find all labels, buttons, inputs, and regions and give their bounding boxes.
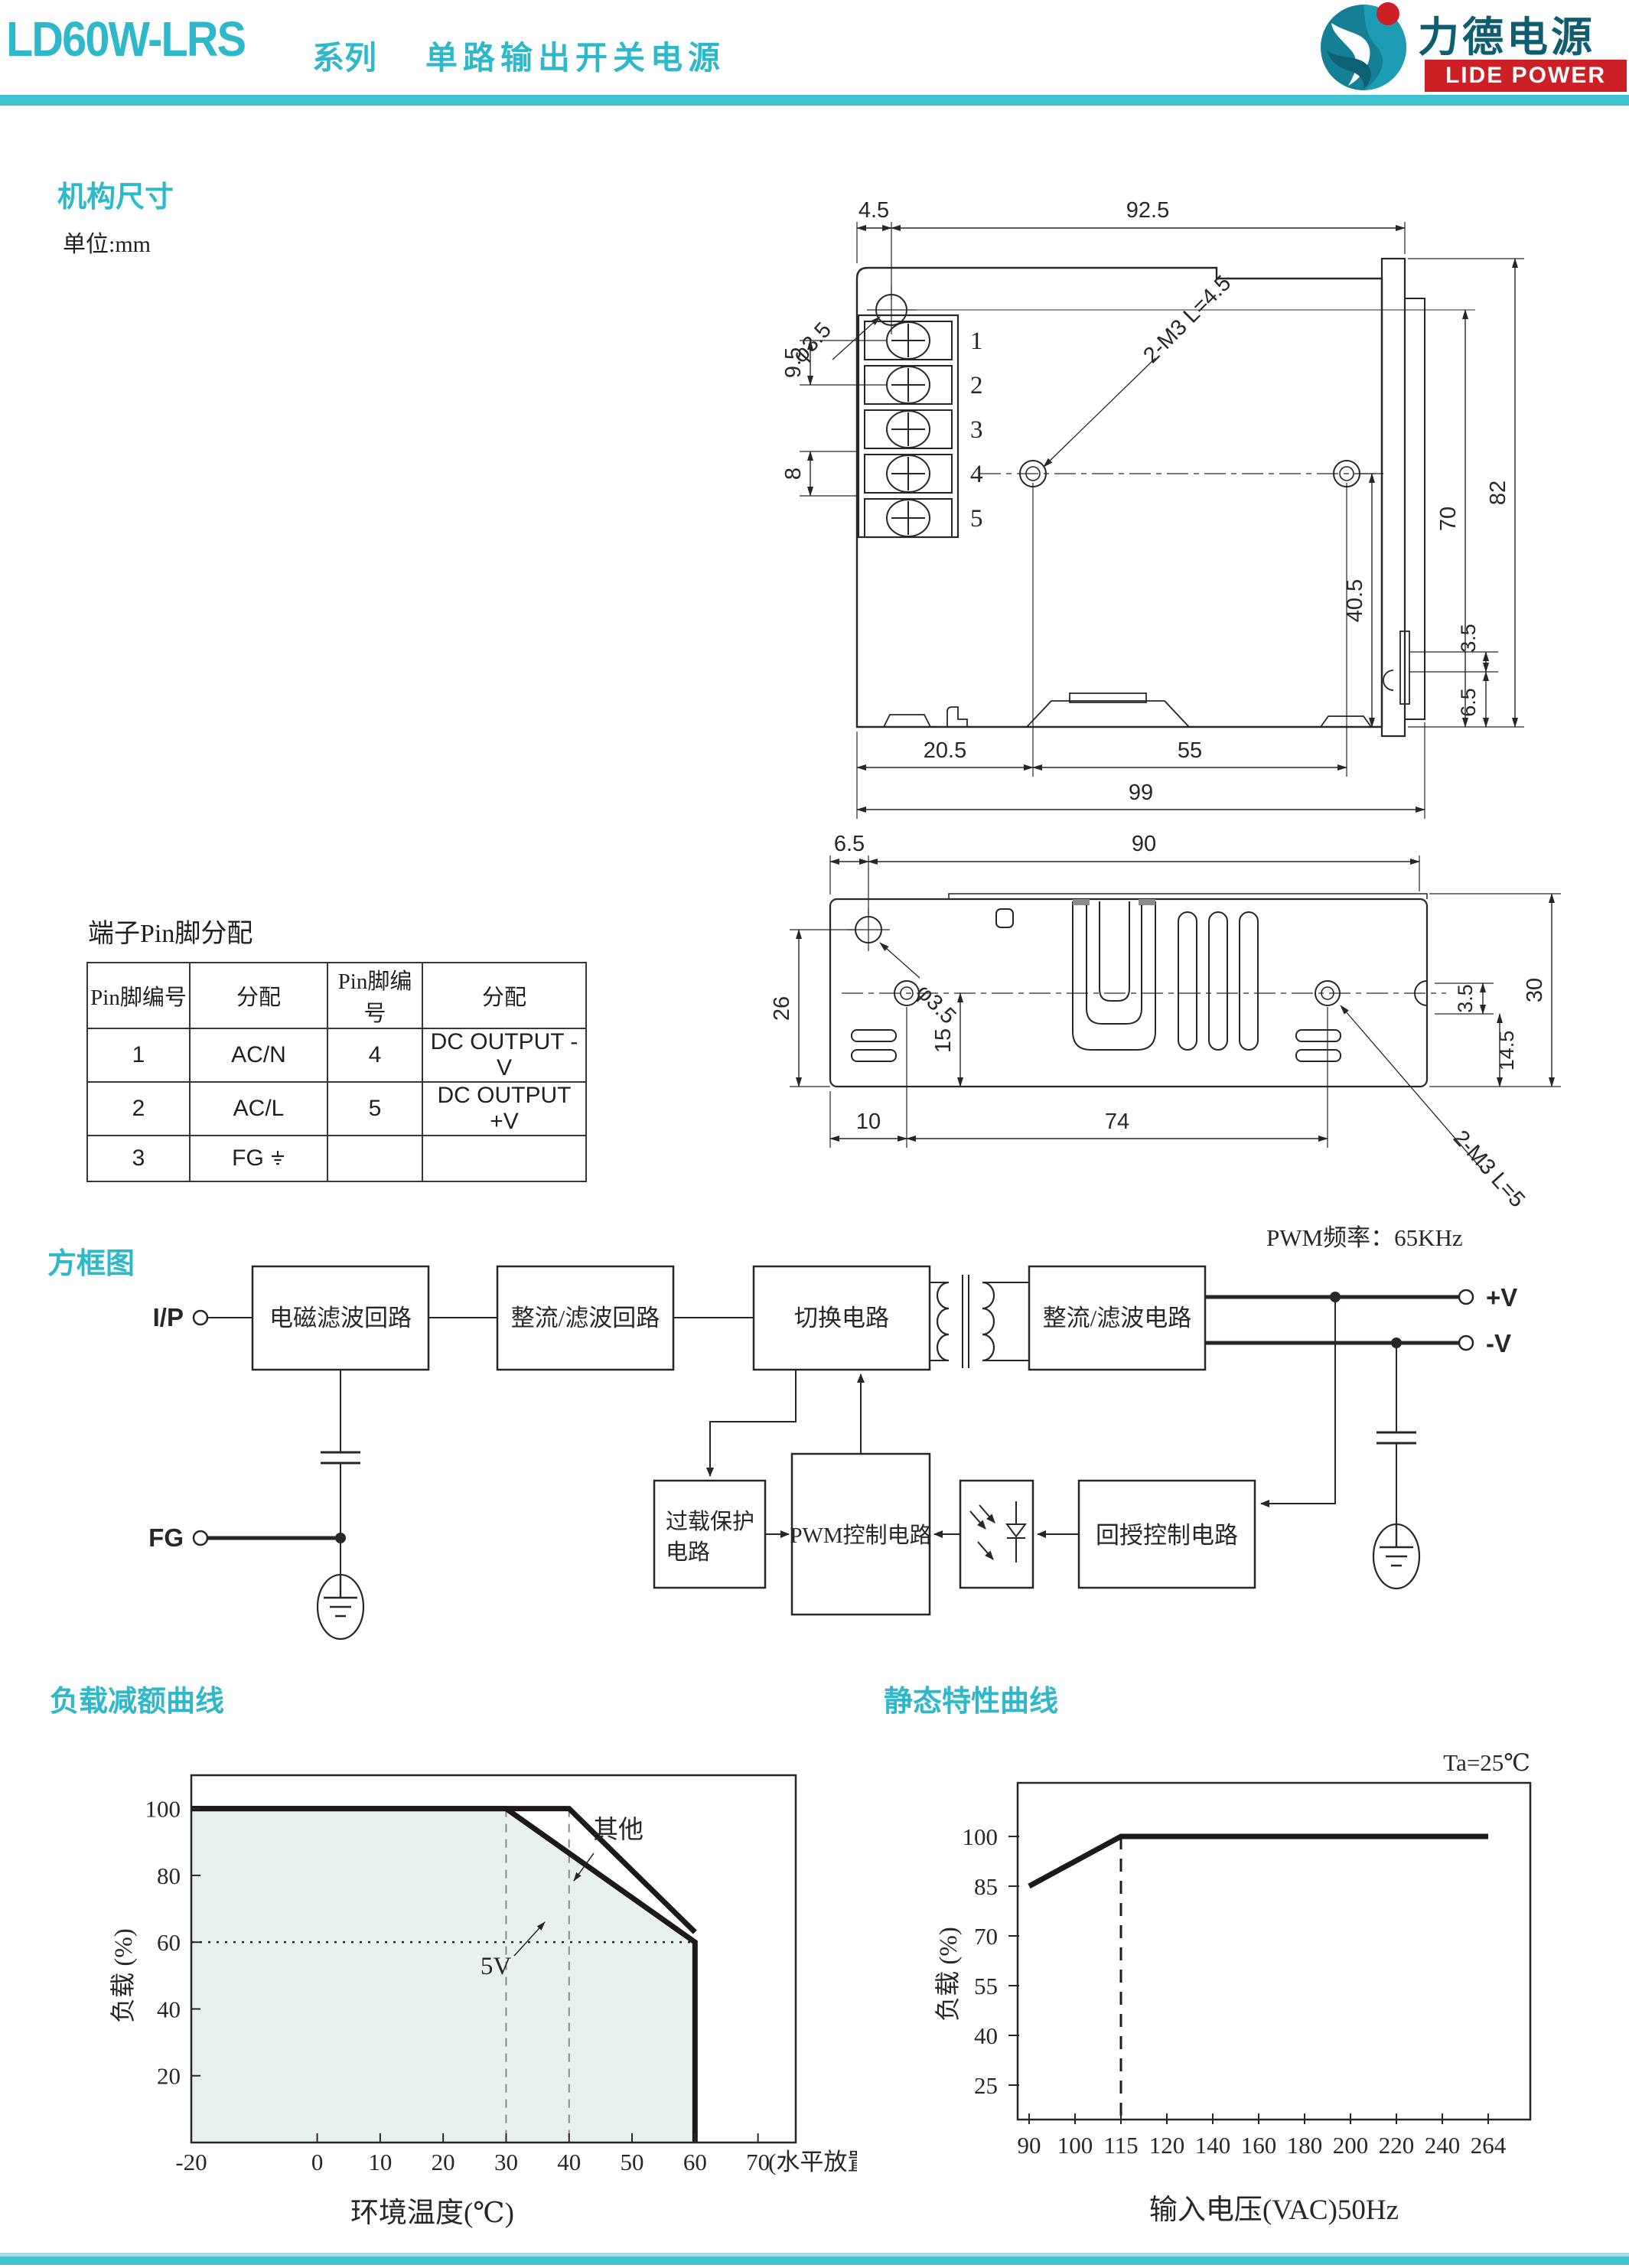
pin-assignment-area: 端子Pin脚分配 Pin脚编号 分配 Pin脚编号 分配 1 AC/N 4 DC… (86, 912, 587, 1182)
block-label: PWM控制电路 (790, 1523, 931, 1548)
block-label: 整流/滤波电路 (1043, 1305, 1192, 1331)
derating-chart-plot: -2001020304050607020406080100 (145, 1796, 771, 2175)
dim-phi35-b: φ3.5 (911, 979, 960, 1028)
x-axis-note: (水平放置) (768, 2149, 857, 2175)
cell-assignment: DC OUTPUT -V (422, 1028, 586, 1082)
table-header-row: Pin脚编号 分配 Pin脚编号 分配 (87, 963, 586, 1028)
block-diagram: PWM频率：65KHz (0, 1224, 1629, 1653)
pwm-frequency-note: PWM频率：65KHz (1266, 1224, 1463, 1251)
dim-55: 55 (1178, 738, 1202, 763)
svg-text:20: 20 (432, 2149, 455, 2175)
block-label: 回授控制电路 (1096, 1522, 1238, 1549)
block-overload-protection: 过载保护 电路 (654, 1481, 765, 1588)
svg-text:240: 240 (1425, 2132, 1461, 2159)
ta-annotation: Ta=25℃ (1443, 1749, 1530, 1776)
earth-ground-icon (1373, 1524, 1419, 1589)
vplus-terminal-icon (1459, 1290, 1473, 1304)
table-row: 2 AC/L 5 DC OUTPUT +V (87, 1082, 586, 1136)
dim-20-5: 20.5 (924, 738, 966, 763)
optocoupler-icon (960, 1481, 1033, 1588)
svg-text:25: 25 (974, 2072, 998, 2099)
block-label: 过载保护 (666, 1509, 754, 1534)
logo-chinese-name: 力德电源 (1418, 3, 1595, 64)
block-rectifier-filter-1: 整流/滤波回路 (497, 1266, 673, 1370)
dimensions-bottom: 6.5 90 φ3.5 26 15 3.5 14.5 30 2-M3 L=5 (770, 832, 1561, 1209)
dim-82: 82 (1486, 481, 1510, 505)
x-axis-title: 输入电压(VAC)50Hz (1149, 2194, 1399, 2226)
svg-text:160: 160 (1241, 2132, 1277, 2159)
vminus-terminal-icon (1459, 1336, 1473, 1350)
svg-text:80: 80 (157, 1862, 181, 1889)
pin-table: Pin脚编号 分配 Pin脚编号 分配 1 AC/N 4 DC OUTPUT -… (86, 962, 587, 1182)
header-cell: 分配 (190, 963, 327, 1028)
dimensions-front: 4.5 92.5 φ3.5 9.5 8 2-M3 L=4.5 40.5 70 8 (781, 198, 1524, 819)
dim-74: 74 (1105, 1110, 1129, 1134)
cell-pin: 2 (87, 1082, 190, 1136)
dim-15: 15 (931, 1028, 956, 1053)
y-axis-title: 负载 (%) (934, 1927, 963, 2022)
terminal-cells (865, 321, 952, 537)
block-pwm-control: PWM控制电路 (790, 1454, 931, 1615)
series-label-5v: 5V (481, 1953, 512, 1980)
dim-4-5: 4.5 (858, 198, 889, 223)
table-row: 3 FG (87, 1136, 586, 1181)
terminal-number: 4 (970, 461, 983, 488)
block-switching: 切换电路 (754, 1266, 930, 1370)
svg-text:20: 20 (157, 2063, 181, 2090)
svg-text:40: 40 (157, 1996, 181, 2022)
cell-assignment (422, 1136, 586, 1181)
block-rectifier-filter-2: 整流/滤波电路 (1029, 1266, 1205, 1370)
cell-assignment: AC/L (190, 1082, 327, 1136)
header-divider-bar (0, 95, 1629, 106)
dim-6-5-b: 6.5 (834, 832, 865, 856)
section-title-derating-curve: 负载减额曲线 (50, 1677, 224, 1719)
svg-text:40: 40 (974, 2022, 998, 2049)
svg-text:40: 40 (557, 2149, 581, 2175)
cell-pin: 1 (87, 1028, 190, 1082)
block-label: 整流/滤波回路 (511, 1305, 660, 1331)
terminal-block: 1 2 3 4 5 (858, 315, 983, 537)
cell-pin: 5 (327, 1082, 422, 1136)
header-cell: Pin脚编号 (327, 963, 422, 1028)
svg-text:220: 220 (1379, 2132, 1415, 2159)
dim-m3-bottom: 2-M3 L=5 (1448, 1126, 1530, 1209)
dim-6-5: 6.5 (1457, 688, 1480, 717)
section-title-static-curve: 静态特性曲线 (884, 1677, 1058, 1719)
pin-table-title: 端子Pin脚分配 (88, 912, 587, 950)
page-title-model: LD60W-LRS (6, 11, 245, 67)
mechanical-drawing-front-view: 1 2 3 4 5 4.5 92.5 φ3.5 9 (727, 184, 1629, 819)
logo-english-name: LIDE POWER (1425, 60, 1627, 92)
cell-pin (327, 1136, 422, 1181)
svg-text:-20: -20 (175, 2149, 207, 2175)
bottom-cutouts (847, 899, 1341, 1061)
input-terminal-label: I/P (153, 1303, 184, 1331)
svg-text:60: 60 (683, 2149, 707, 2175)
dim-8: 8 (781, 468, 806, 480)
cell-pin: 3 (87, 1136, 190, 1181)
series-label-other: 其他 (593, 1816, 643, 1844)
header-cell: 分配 (422, 963, 586, 1028)
dim-26: 26 (770, 996, 794, 1021)
cell-pin: 4 (327, 1028, 422, 1082)
svg-text:0: 0 (311, 2149, 324, 2175)
cell-assignment: DC OUTPUT +V (422, 1082, 586, 1136)
vplus-label: +V (1486, 1283, 1517, 1312)
block-label: 切换电路 (794, 1305, 889, 1331)
dim-14-5: 14.5 (1495, 1031, 1518, 1071)
section-title-mechanical: 机构尺寸 (57, 173, 174, 215)
footer-divider-bar (0, 2257, 1629, 2265)
static-curve-chart: 9010011512014016018020022024026425405570… (857, 1745, 1629, 2250)
y-axis-title: 负载 (%) (109, 1928, 138, 2023)
table-row: 1 AC/N 4 DC OUTPUT -V (87, 1028, 586, 1082)
block-label: 电磁滤波回路 (269, 1305, 412, 1331)
header-cell: Pin脚编号 (87, 963, 190, 1028)
cell-assignment: AC/N (190, 1028, 327, 1082)
plot-frame (1018, 1783, 1530, 2120)
dim-9-5: 9.5 (781, 347, 806, 378)
centerline-and-holes (979, 461, 1383, 487)
unit-label: 单位:mm (63, 225, 151, 259)
mechanical-drawing-bottom-view: 6.5 90 φ3.5 26 15 3.5 14.5 30 2-M3 L=5 (727, 826, 1629, 1209)
derating-chart: -2001020304050607020406080100 5V 其他 (水平放… (46, 1745, 857, 2250)
svg-text:55: 55 (974, 1973, 998, 1999)
svg-text:100: 100 (1057, 2132, 1093, 2159)
svg-text:180: 180 (1287, 2132, 1323, 2159)
svg-text:100: 100 (145, 1796, 181, 1823)
dim-10: 10 (856, 1110, 881, 1134)
terminal-number: 2 (970, 372, 983, 399)
svg-text:115: 115 (1103, 2132, 1138, 2159)
dim-90: 90 (1132, 832, 1156, 856)
dim-92-5: 92.5 (1126, 198, 1169, 223)
svg-text:70: 70 (746, 2149, 770, 2175)
vminus-label: -V (1486, 1329, 1511, 1357)
block-feedback-control: 回授控制电路 (1079, 1481, 1255, 1588)
bottom-feet (884, 693, 1371, 727)
terminal-number: 1 (970, 327, 983, 355)
logo (1318, 0, 1412, 97)
svg-text:30: 30 (494, 2149, 518, 2175)
svg-text:85: 85 (974, 1873, 998, 1900)
svg-text:200: 200 (1333, 2132, 1369, 2159)
fg-terminal-icon (194, 1531, 207, 1545)
svg-text:50: 50 (621, 2149, 644, 2175)
block-label: 电路 (666, 1540, 710, 1565)
svg-text:90: 90 (1018, 2132, 1041, 2159)
x-axis-title: 环境温度(℃) (350, 2197, 514, 2229)
earth-ground-icon (270, 1150, 285, 1167)
dim-30: 30 (1523, 978, 1547, 1002)
datasheet-page: LD60W-LRS 系列 单路输出开关电源 力德电源 LIDE POWER 机构… (0, 0, 1629, 2268)
svg-text:120: 120 (1149, 2132, 1185, 2159)
svg-text:60: 60 (157, 1929, 181, 1956)
transformer-icon (937, 1275, 994, 1368)
earth-ground-icon (318, 1575, 363, 1639)
dim-3-5: 3.5 (1457, 624, 1480, 653)
svg-text:70: 70 (974, 1923, 998, 1950)
dim-70: 70 (1436, 507, 1461, 531)
page-title-desc: 单路输出开关电源 (425, 32, 725, 79)
chassis-outline (857, 259, 1425, 736)
svg-text:10: 10 (368, 2149, 392, 2175)
svg-text:140: 140 (1195, 2132, 1231, 2159)
fg-label: FG (232, 1145, 264, 1171)
ip-terminal-icon (194, 1311, 207, 1325)
svg-text:100: 100 (963, 1823, 999, 1850)
terminal-number: 3 (970, 416, 983, 444)
page-title-series: 系列 (312, 32, 376, 79)
fg-terminal-label: FG (148, 1523, 184, 1552)
cell-assignment: FG (190, 1136, 327, 1181)
block-emi-filter: 电磁滤波回路 (252, 1266, 428, 1370)
dim-m3-front: 2-M3 L=4.5 (1139, 271, 1236, 368)
dim-99: 99 (1129, 780, 1153, 805)
static-chart-plot: 9010011512014016018020022024026425405570… (963, 1823, 1507, 2159)
dim-3-5-b: 3.5 (1454, 984, 1477, 1013)
svg-text:264: 264 (1471, 2132, 1507, 2159)
terminal-number: 5 (970, 505, 983, 533)
logo-icon (1318, 0, 1412, 93)
